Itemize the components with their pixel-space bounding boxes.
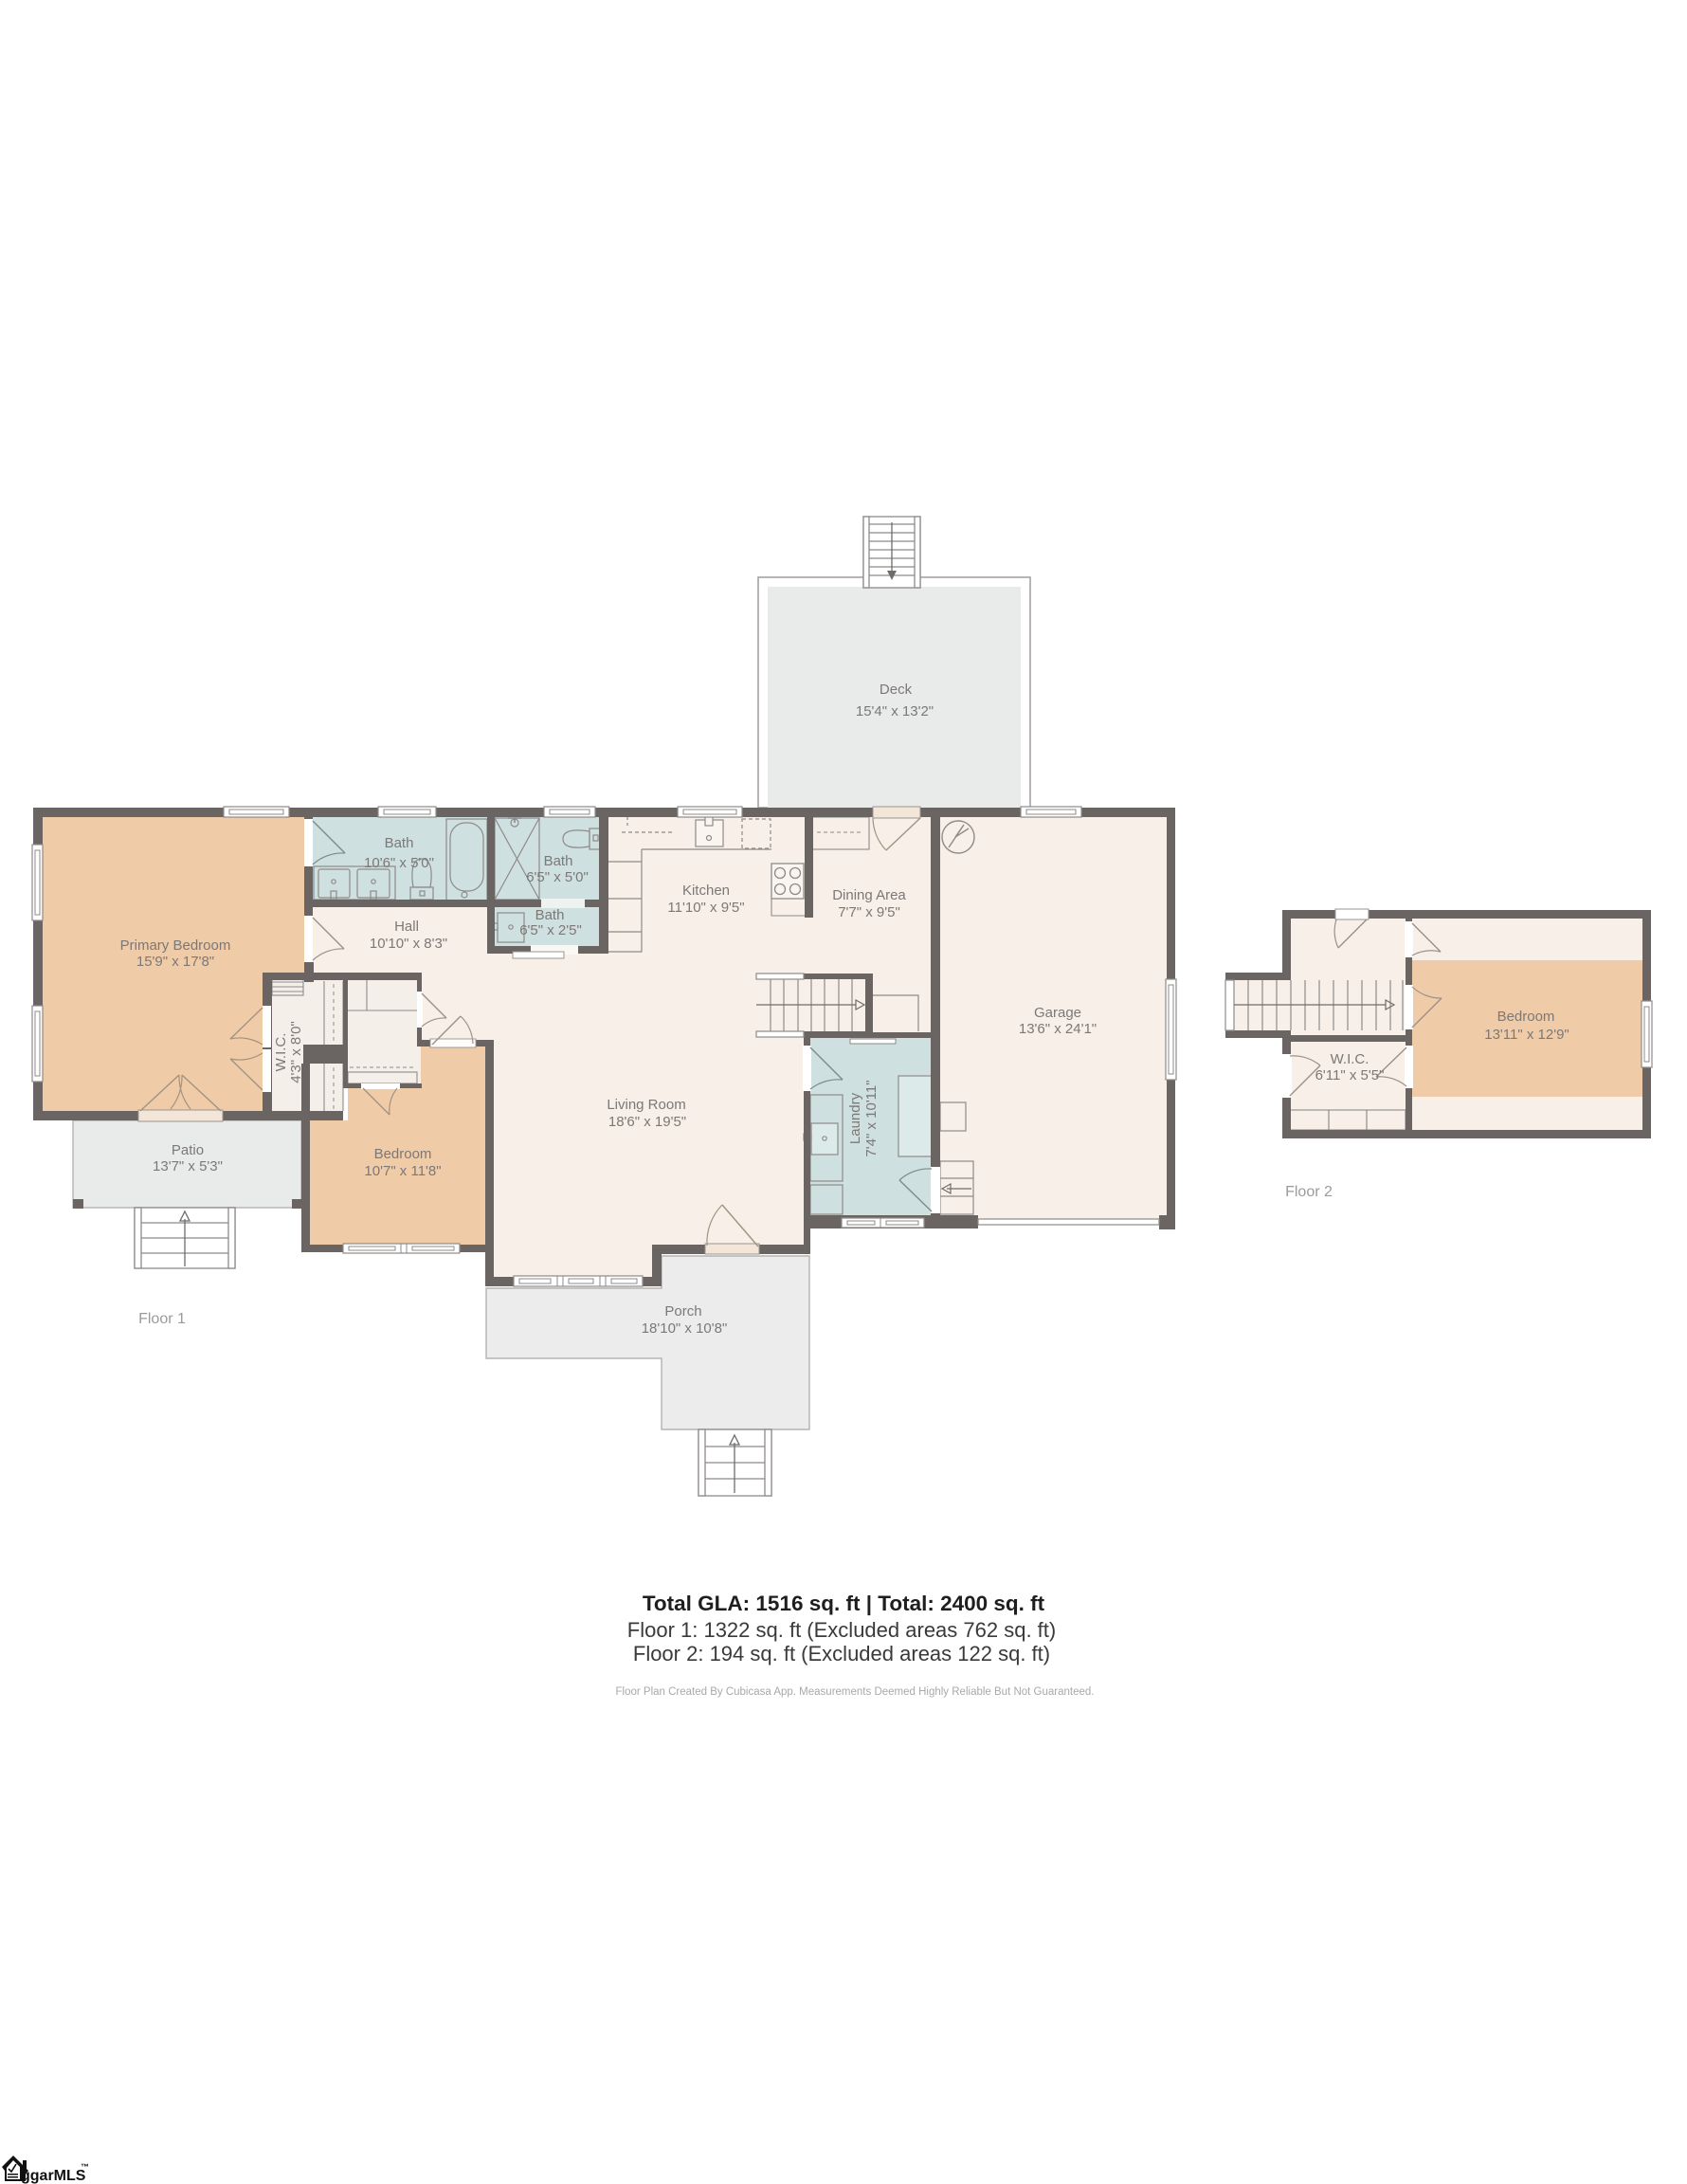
- svg-text:Garage: Garage: [1034, 1005, 1081, 1021]
- svg-text:13'11" x 12'9": 13'11" x 12'9": [1484, 1027, 1569, 1043]
- svg-text:10'6" x 5'0": 10'6" x 5'0": [364, 855, 434, 871]
- svg-text:Bath: Bath: [385, 835, 414, 851]
- svg-text:Bedroom: Bedroom: [374, 1146, 432, 1162]
- svg-text:Bedroom: Bedroom: [1497, 1009, 1555, 1025]
- svg-text:13'7" x 5'3": 13'7" x 5'3": [153, 1158, 223, 1174]
- svg-text:18'10" x 10'8": 18'10" x 10'8": [642, 1320, 728, 1337]
- svg-text:Dining Area: Dining Area: [832, 887, 906, 903]
- svg-text:15'9" x 17'8": 15'9" x 17'8": [136, 954, 214, 970]
- svg-text:W.I.C.: W.I.C.: [273, 1033, 289, 1072]
- svg-text:Laundry: Laundry: [847, 1092, 863, 1144]
- svg-text:Living Room: Living Room: [607, 1097, 685, 1113]
- svg-text:W.I.C.: W.I.C.: [1331, 1051, 1370, 1067]
- svg-text:Porch: Porch: [664, 1303, 701, 1319]
- svg-text:Floor 1: Floor 1: [138, 1311, 186, 1327]
- svg-text:13'6" x 24'1": 13'6" x 24'1": [1019, 1021, 1097, 1037]
- svg-text:Floor 2: 194 sq. ft (Excluded: Floor 2: 194 sq. ft (Excluded areas 122 …: [633, 1642, 1050, 1665]
- svg-text:6'11" x 5'5": 6'11" x 5'5": [1315, 1067, 1385, 1083]
- svg-text:Total GLA: 1516 sq. ft | Total: Total GLA: 1516 sq. ft | Total: 2400 sq.…: [643, 1592, 1045, 1615]
- svg-text:Primary Bedroom: Primary Bedroom: [120, 937, 231, 954]
- svg-text:ggarMLS: ggarMLS: [21, 2168, 86, 2184]
- svg-text:Deck: Deck: [880, 682, 913, 698]
- svg-text:Floor 1: 1322 sq. ft (Excluded: Floor 1: 1322 sq. ft (Excluded areas 762…: [627, 1618, 1056, 1642]
- svg-text:™: ™: [81, 2162, 89, 2172]
- svg-text:15'4" x 13'2": 15'4" x 13'2": [856, 703, 934, 719]
- svg-text:10'10" x 8'3": 10'10" x 8'3": [370, 936, 447, 952]
- svg-text:6'5" x 5'0": 6'5" x 5'0": [526, 869, 589, 885]
- svg-text:Floor 2: Floor 2: [1285, 1184, 1333, 1200]
- svg-text:Bath: Bath: [535, 907, 565, 923]
- svg-text:Bath: Bath: [544, 853, 573, 869]
- svg-text:7'7" x 9'5": 7'7" x 9'5": [838, 904, 900, 920]
- svg-text:11'10" x 9'5": 11'10" x 9'5": [667, 900, 744, 916]
- svg-text:Kitchen: Kitchen: [682, 883, 730, 899]
- svg-text:18'6" x 19'5": 18'6" x 19'5": [608, 1114, 686, 1130]
- svg-text:Hall: Hall: [394, 919, 419, 935]
- svg-text:10'7" x 11'8": 10'7" x 11'8": [364, 1163, 441, 1179]
- svg-text:4'3" x 8'0": 4'3" x 8'0": [288, 1021, 304, 1083]
- svg-text:7'4" x 10'11": 7'4" x 10'11": [863, 1080, 880, 1156]
- svg-text:Patio: Patio: [172, 1142, 204, 1158]
- svg-text:6'5" x 2'5": 6'5" x 2'5": [519, 922, 582, 938]
- svg-text:Floor Plan Created By Cubicasa: Floor Plan Created By Cubicasa App. Meas…: [616, 1686, 1095, 1698]
